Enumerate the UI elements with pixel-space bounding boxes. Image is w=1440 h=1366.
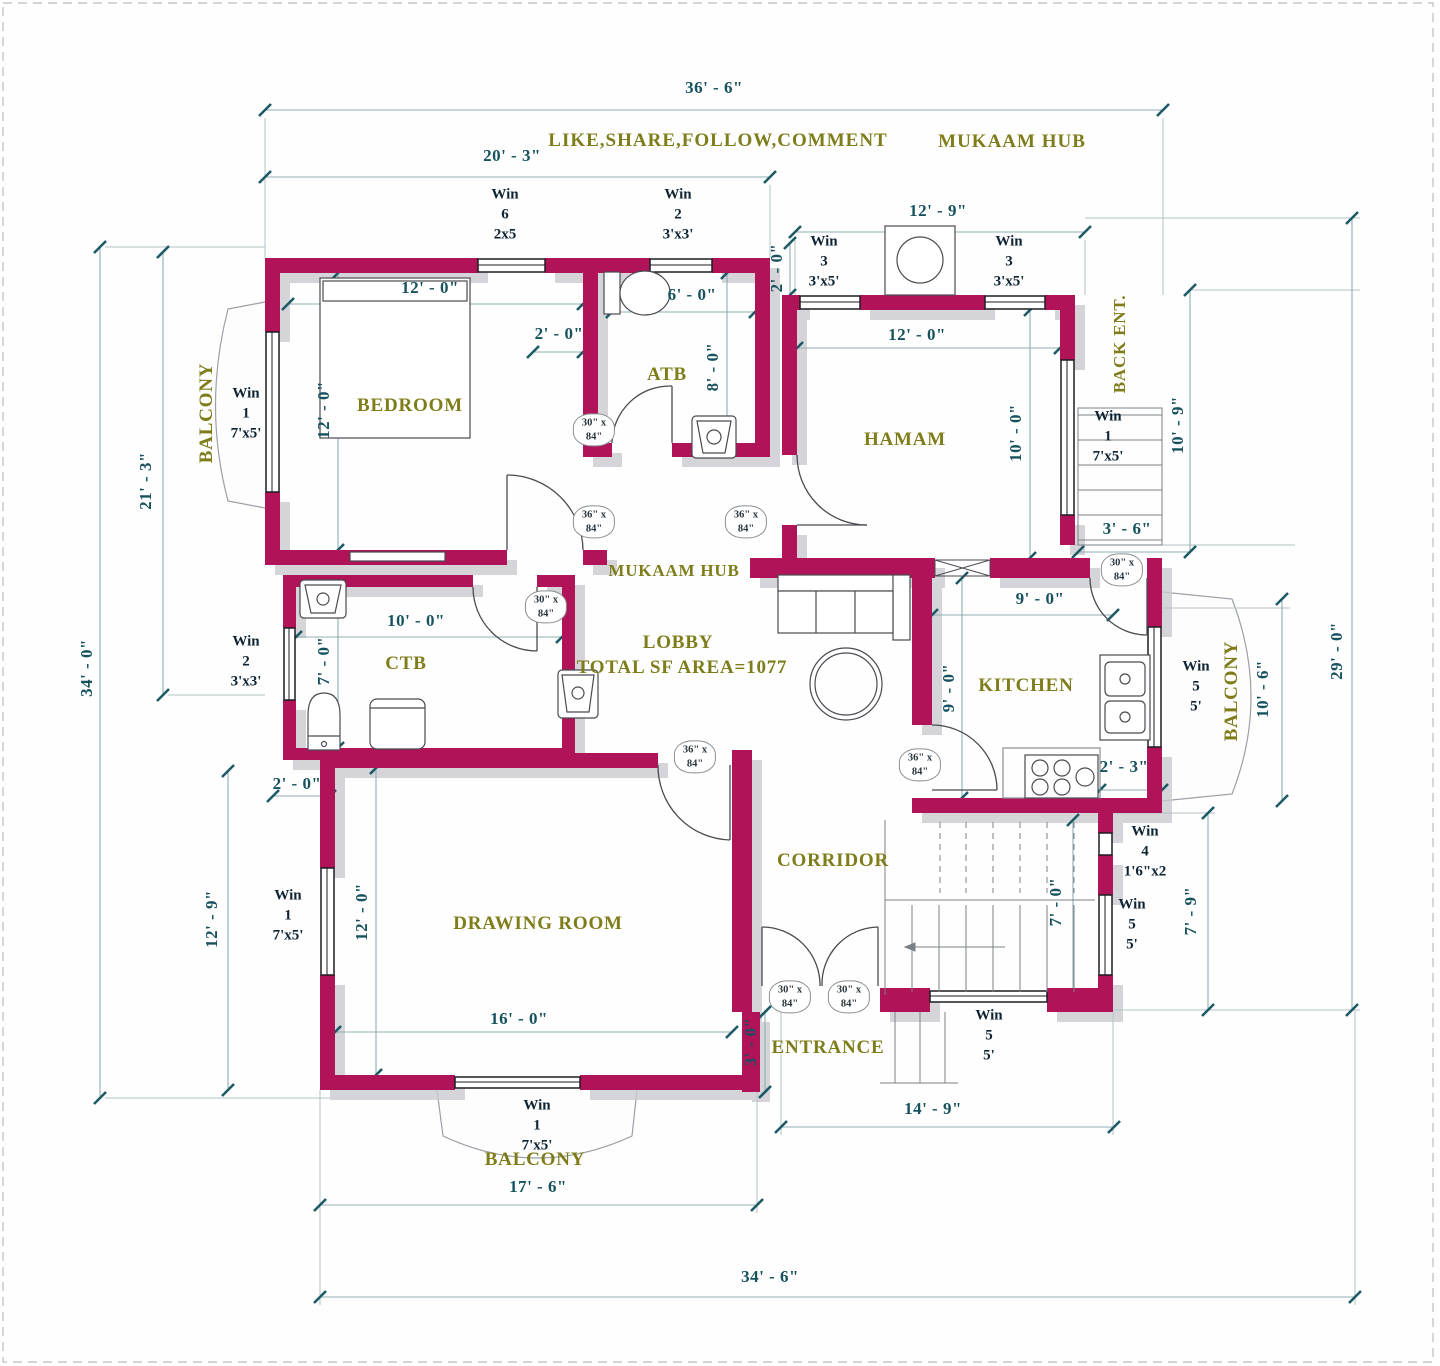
sofa-back [778,575,908,591]
stair-direction-arrow [905,943,915,951]
room-label-lobby-area: TOTAL SF AREA=1077 [577,657,788,679]
sofa-arm [893,575,910,640]
window-label-win2-top: Win23'x3' [663,185,694,244]
window-label-win3-a: Win33'x5' [809,232,840,291]
window-label-win2-ctb: Win23'x3' [231,632,262,691]
window-label-win1-backent: Win17'x5' [1093,407,1124,466]
door-badge-backent: 30" x84" [1101,553,1143,586]
door-badge-atb: 30" x84" [573,413,615,446]
dim-top-left: 20' - 3" [483,146,541,166]
dim-entrance-h: 3' - 0" [741,1018,761,1067]
dim-top-right: 12' - 9" [909,201,967,221]
dim-bottom-17-6: 17' - 6" [509,1177,567,1197]
dim-hamam-9: 9' - 0" [1016,589,1065,609]
kitchen-sink [1100,655,1150,740]
window-label-win1-drawing: Win17'x5' [273,886,304,945]
washing-machine [885,226,955,295]
room-label-atb: ATB [647,364,687,386]
door-badge-kitchen: 36" x84" [899,748,941,781]
dim-hamam-gap: 2' - 0" [767,244,787,293]
dim-bed-atb-gap: 2' - 0" [535,324,584,344]
dim-ctb-h: 7' - 0" [314,637,334,686]
room-label-bedroom: BEDROOM [357,395,463,417]
bedroom-dresser [350,552,445,561]
entrance-door-left-swing [762,927,820,986]
entrance-door-right-swing [822,927,878,986]
dim-right-3-6: 3' - 6" [1103,519,1152,539]
dim-right-7-9: 7' - 9" [1181,887,1201,936]
dim-kitchen-9: 9' - 0" [939,664,959,713]
dim-drawing-h: 12' - 0" [352,883,372,941]
dim-top-total: 36' - 6" [685,78,743,98]
dim-kitchen-2-3: 2' - 3" [1100,757,1149,777]
atb-toilet-bowl [620,271,670,315]
window-label-win4: Win41'6"x2 [1124,822,1167,881]
brand-title: MUKAAM HUB [938,131,1086,153]
room-label-lobby: LOBBY [643,632,714,654]
dim-stair-h: 7' - 0" [1046,878,1066,927]
hamam-door-swing [797,455,867,525]
door-badge-ctb: 30" x84" [525,590,567,623]
lobby-table [810,648,882,720]
win4-glyph [1099,833,1112,855]
stairs [880,408,1162,1083]
dim-hamam-h: 10' - 0" [1006,404,1026,462]
room-label-entrance: ENTRANCE [771,1037,884,1059]
room-label-corridor: CORRIDOR [777,850,889,872]
window-label-win3-b: Win33'x5' [994,232,1025,291]
drawing-door-swing [658,765,730,840]
window-label-win1-bottom: Win17'x5' [522,1096,553,1155]
atb-basin [692,416,736,458]
atb-door-swing [612,386,672,443]
dim-bedroom-w: 12' - 0" [401,278,459,298]
window-label-win5-kitchen: Win55' [1182,657,1209,716]
bedroom-door-swing [507,475,583,550]
room-label-back-ent: BACK ENT. [1110,295,1130,394]
room-label-hamam: HAMAM [864,429,946,451]
dim-atb-h: 8' - 0" [703,343,723,392]
ctb-geyser [370,699,425,749]
dim-hamam-w: 12' - 0" [888,325,946,345]
room-label-mukaam-hub: MUKAAM HUB [608,561,739,581]
dim-ctb-w: 10' - 0" [387,611,445,631]
dim-left-upper: 21' - 3" [136,452,156,510]
dim-jog-2-0: 2' - 0" [273,774,322,794]
window-label-win1-balcony: Win17'x5' [231,384,262,443]
social-banner: LIKE,SHARE,FOLLOW,COMMENT [548,130,887,152]
dim-bottom-14-9: 14' - 9" [904,1099,962,1119]
dim-left-lower: 12' - 9" [202,890,222,948]
dim-bottom-34-6: 34' - 6" [741,1267,799,1287]
floor-plan-canvas: LIKE,SHARE,FOLLOW,COMMENT MUKAAM HUB BAL… [0,0,1440,1366]
dim-balcony-right-h: 10' - 6" [1253,660,1273,718]
dim-drawing-w: 16' - 0" [490,1009,548,1029]
door-badge-bedroom: 36" x84" [573,505,615,538]
dim-right-total: 29' - 0" [1327,622,1347,680]
door-badge-entrance-left: 30" x84" [769,980,811,1013]
dim-atb-w: 6' - 0" [668,285,717,305]
room-label-ctb: CTB [385,653,426,675]
sofa-seat [778,591,893,633]
atb-toilet-tank [604,272,620,314]
room-label-balcony-right: BALCONY [1221,641,1243,742]
room-label-balcony-left: BALCONY [196,363,218,464]
window-label-win5-bottom: Win55' [975,1006,1002,1065]
dim-backent-h: 10' - 9" [1168,396,1188,454]
door-badge-hamam: 36" x84" [725,505,767,538]
dim-bedroom-h: 12' - 0" [314,381,334,439]
room-label-drawing-room: DRAWING ROOM [453,913,623,935]
window-label-win5-right: Win55' [1118,895,1145,954]
ctb-basin [300,580,346,618]
dim-left-total: 34' - 0" [77,639,97,697]
door-badge-drawing: 36" x84" [674,740,716,773]
door-badge-entrance-right: 30" x84" [828,980,870,1013]
room-label-kitchen: KITCHEN [978,675,1073,697]
window-label-win6: Win62x5 [491,185,518,244]
